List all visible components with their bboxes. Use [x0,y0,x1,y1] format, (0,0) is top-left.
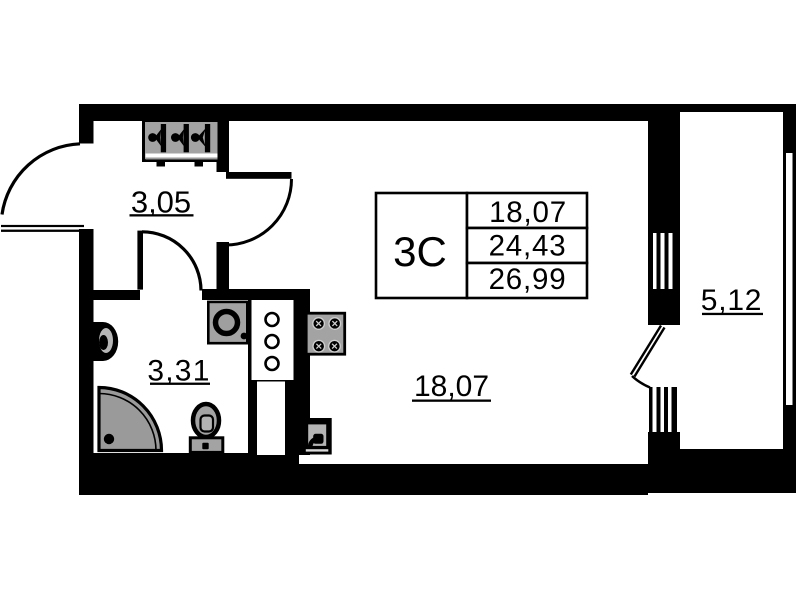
svg-text:24,43: 24,43 [489,230,567,263]
svg-text:26,99: 26,99 [489,263,567,296]
svg-text:18,07: 18,07 [489,196,567,229]
svg-text:18,07: 18,07 [414,370,489,403]
svg-text:3С: 3С [393,228,447,275]
svg-text:3,31: 3,31 [147,354,210,387]
svg-text:5,12: 5,12 [701,284,763,317]
